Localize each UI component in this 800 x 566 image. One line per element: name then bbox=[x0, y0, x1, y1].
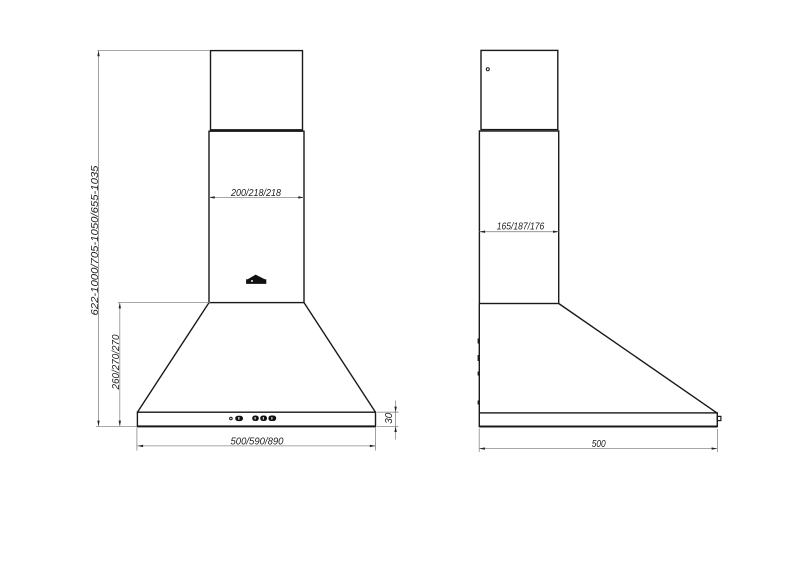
svg-text:260/270/270: 260/270/270 bbox=[110, 334, 122, 390]
svg-text:500/590/890: 500/590/890 bbox=[231, 436, 284, 448]
svg-text:622-1000/705-1050/655-1035: 622-1000/705-1050/655-1035 bbox=[89, 165, 101, 315]
svg-text:165/187/176: 165/187/176 bbox=[497, 221, 545, 233]
svg-text:500: 500 bbox=[592, 438, 606, 450]
svg-text:30: 30 bbox=[383, 413, 395, 424]
svg-text:200/218/218: 200/218/218 bbox=[230, 187, 281, 199]
